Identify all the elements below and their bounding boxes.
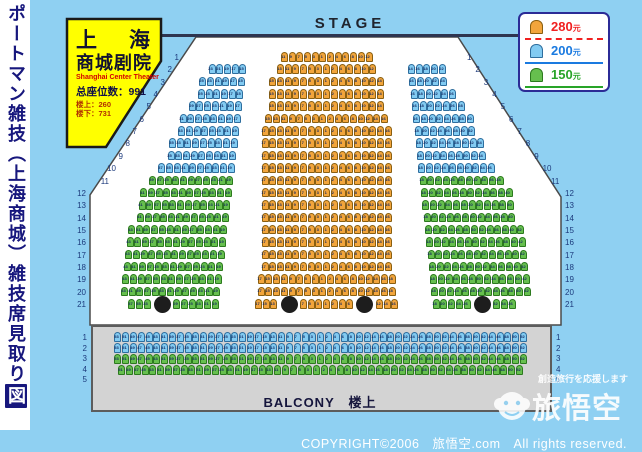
seat: 30	[474, 250, 481, 260]
seat: 16	[385, 262, 392, 272]
seat: 31	[176, 213, 183, 223]
total-seats-text: 总座位数：991	[76, 84, 146, 99]
seat: 10	[358, 114, 365, 124]
seat: 5	[308, 138, 315, 148]
seat: 11	[285, 64, 292, 74]
seat: 12	[369, 101, 376, 111]
seat: 19	[218, 250, 225, 260]
seat: 18	[415, 126, 422, 136]
seat: 15	[269, 188, 276, 198]
seat: 17	[262, 262, 269, 272]
seat: 33	[162, 262, 169, 272]
seat: 5	[308, 200, 315, 210]
seat: 16	[385, 213, 392, 223]
seat: 16	[409, 77, 416, 87]
seat: 35	[166, 163, 173, 173]
seat: 24	[452, 262, 459, 272]
seat: 36	[488, 163, 495, 173]
seat: 6	[341, 354, 348, 364]
seat: 24	[447, 213, 454, 223]
seat: 6	[346, 176, 353, 186]
seat: 1	[323, 151, 330, 161]
seat: 14	[372, 343, 379, 353]
seat: 37	[157, 176, 164, 186]
seat: 19	[247, 332, 254, 342]
seat: 42	[519, 237, 526, 247]
seat: 24	[448, 225, 455, 235]
seat: 9	[292, 262, 299, 272]
seat: 4	[333, 332, 340, 342]
seat: 17	[230, 77, 237, 87]
seat: 6	[346, 151, 353, 161]
seat: 8	[354, 213, 361, 223]
seat: 32	[483, 262, 490, 272]
seat: 39	[136, 287, 143, 297]
seat: 7	[294, 343, 301, 353]
seat: 26	[448, 151, 455, 161]
row-number-label: 15	[565, 226, 574, 235]
seat: 26	[449, 89, 456, 99]
seat: 10	[362, 188, 369, 198]
seat: 4	[333, 343, 340, 353]
seat: 13	[277, 89, 284, 99]
seat: 13	[277, 163, 284, 173]
seat: 38	[502, 225, 509, 235]
seat: 19	[216, 262, 223, 272]
seat: 49	[130, 354, 137, 364]
seat: 22	[436, 188, 443, 198]
seat: 16	[381, 114, 388, 124]
seat: 16	[381, 287, 388, 297]
seat: 35	[165, 176, 172, 186]
seat: 15	[269, 101, 276, 111]
seat: 16	[385, 176, 392, 186]
seat: 12	[369, 250, 376, 260]
seat: 39	[142, 237, 149, 247]
seat: 33	[188, 365, 195, 375]
seat: 38	[465, 343, 472, 353]
seat: 16	[376, 365, 383, 375]
seat: 12	[364, 354, 371, 364]
seat: 4	[339, 163, 346, 173]
seat: 20	[437, 262, 444, 272]
seat: 28	[456, 151, 463, 161]
seat: 2	[331, 225, 338, 235]
seat: 9	[289, 52, 296, 62]
seat: 48	[504, 332, 511, 342]
seat: 40	[510, 225, 517, 235]
seat: 10	[356, 343, 363, 353]
seat: 6	[346, 262, 353, 272]
seat: 50	[512, 354, 519, 364]
seat: 5	[308, 176, 315, 186]
seat: 39	[169, 343, 176, 353]
seat: 3	[315, 163, 322, 173]
seat: 35	[152, 287, 159, 297]
seat: 42	[524, 287, 531, 297]
seat: 7	[300, 176, 307, 186]
seat: 32	[479, 225, 486, 235]
seat: 10	[352, 365, 359, 375]
seat: 21	[220, 163, 227, 173]
seat: 15	[269, 151, 276, 161]
seat: 39	[165, 365, 172, 375]
seat: 36	[493, 213, 500, 223]
seat: 27	[193, 200, 200, 210]
seat: 21	[219, 176, 226, 186]
seat: 27	[195, 176, 202, 186]
seat: 19	[226, 114, 233, 124]
seat: 11	[285, 250, 292, 260]
row-number-label: 21	[72, 300, 86, 309]
seat: 25	[202, 188, 209, 198]
seat: 7	[300, 213, 307, 223]
seat: 16	[385, 151, 392, 161]
seat: 2	[331, 188, 338, 198]
seat: 25	[197, 225, 204, 235]
seat: 26	[457, 237, 464, 247]
seat: 36	[458, 343, 465, 353]
seat: 13	[277, 77, 284, 87]
seat: 25	[190, 287, 197, 297]
seat: 18	[431, 287, 438, 297]
seat: 4	[339, 213, 346, 223]
seat: 25	[205, 163, 212, 173]
seat: 13	[270, 354, 277, 364]
seat: 19	[243, 365, 250, 375]
seat: 11	[285, 126, 292, 136]
seat: 15	[269, 225, 276, 235]
seat: 10	[362, 262, 369, 272]
seat: 15	[269, 237, 276, 247]
legend-row-150: 150元	[525, 65, 603, 89]
watermark-tagline: 創造旅行を応援します	[538, 372, 628, 385]
seat: 28	[422, 365, 429, 375]
seat: 8	[354, 138, 361, 148]
seat: 19	[247, 343, 254, 353]
seat: 4	[339, 89, 346, 99]
seat: 32	[471, 151, 478, 161]
seat: 22	[443, 250, 450, 260]
seat: 3	[315, 64, 322, 74]
seat: 10	[362, 176, 369, 186]
seat: 33	[172, 176, 179, 186]
seat: 23	[217, 126, 224, 136]
seat: 9	[289, 274, 296, 284]
seat: 23	[202, 250, 209, 260]
seat: 9	[292, 163, 299, 173]
seat: 17	[255, 354, 262, 364]
seat: 7	[296, 114, 303, 124]
seat: 36	[494, 225, 501, 235]
seat: 13	[270, 299, 277, 309]
seat: 23	[209, 188, 216, 198]
seat: 35	[169, 138, 176, 148]
seat: 28	[460, 188, 467, 198]
seat: 33	[161, 274, 168, 284]
seat: 29	[208, 332, 215, 342]
seat: 21	[213, 89, 220, 99]
row-number-label: 18	[565, 263, 574, 272]
seat: 25	[199, 213, 206, 223]
seat: 34	[488, 237, 495, 247]
seat: 10	[362, 200, 369, 210]
seat: 33	[174, 163, 181, 173]
seat: 14	[372, 332, 379, 342]
seat: 35	[185, 354, 192, 364]
seat: 40	[508, 213, 515, 223]
seat: 15	[239, 64, 246, 74]
seat: 42	[481, 332, 488, 342]
seat: 13	[277, 151, 284, 161]
seat: 22	[403, 332, 410, 342]
seat: 29	[189, 163, 196, 173]
seat: 51	[118, 365, 125, 375]
seat: 45	[146, 354, 153, 364]
seat: 25	[204, 101, 211, 111]
seat: 44	[485, 365, 492, 375]
seat: 25	[194, 250, 201, 260]
seat: 27	[194, 188, 201, 198]
seat: 4	[339, 126, 346, 136]
seat: 31	[183, 151, 190, 161]
seat: 40	[512, 250, 519, 260]
seat: 3	[312, 114, 319, 124]
seat: 10	[358, 274, 365, 284]
seat: 20	[427, 176, 434, 186]
seat: 9	[289, 287, 296, 297]
seat: 15	[259, 365, 266, 375]
seat: 6	[337, 365, 344, 375]
seat: 21	[239, 354, 246, 364]
seat: 25	[208, 138, 215, 148]
legend-underline	[525, 86, 603, 88]
seat: 22	[446, 274, 453, 284]
seat: 16	[413, 114, 420, 124]
legend-price-150: 150元	[551, 67, 581, 82]
seat: 11	[285, 138, 292, 148]
seat: 19	[222, 77, 229, 87]
seat: 5	[308, 262, 315, 272]
seat: 21	[239, 332, 246, 342]
seat: 15	[236, 89, 243, 99]
seat: 17	[262, 188, 269, 198]
seat: 6	[342, 114, 349, 124]
row-number-label: 1	[556, 333, 560, 342]
seat: 20	[391, 365, 398, 375]
seat: 41	[137, 213, 144, 223]
seat: 37	[153, 213, 160, 223]
seat: 2	[331, 151, 338, 161]
seat: 10	[362, 126, 369, 136]
seat: 21	[218, 114, 225, 124]
seat: 34	[487, 225, 494, 235]
seat: 28	[458, 176, 465, 186]
seat: 37	[177, 354, 184, 364]
seat: 20	[434, 237, 441, 247]
seat: 32	[478, 213, 485, 223]
seat: 6	[341, 332, 348, 342]
seat: 41	[161, 332, 168, 342]
seat: 17	[262, 200, 269, 210]
seat: 24	[439, 138, 446, 148]
seat: 18	[418, 163, 425, 173]
seat: 5	[308, 299, 315, 309]
seat: 23	[198, 287, 205, 297]
seat: 23	[215, 138, 222, 148]
seat: 36	[490, 188, 497, 198]
seat: 37	[148, 250, 155, 260]
seat: 20	[429, 114, 436, 124]
seat: 3	[315, 200, 322, 210]
seat: 35	[153, 274, 160, 284]
seat: 34	[484, 200, 491, 210]
seat: 7	[300, 262, 307, 272]
seat: 13	[270, 343, 277, 353]
seat: 31	[180, 114, 187, 124]
row-number-label: 10	[543, 164, 552, 173]
seat: 3	[315, 237, 322, 247]
seat: 22	[435, 101, 442, 111]
seat: 24	[411, 343, 418, 353]
seat: 33	[169, 200, 176, 210]
seat: 22	[434, 89, 441, 99]
seat: 28	[463, 225, 470, 235]
seat: 41	[133, 250, 140, 260]
row-number-label: 1	[73, 333, 87, 342]
seat: 21	[221, 151, 228, 161]
seat: 20	[431, 213, 438, 223]
seat: 24	[445, 200, 452, 210]
seat: 31	[167, 287, 174, 297]
seat: 28	[466, 250, 473, 260]
seat: 21	[206, 287, 213, 297]
seat: 6	[346, 89, 353, 99]
seat: 16	[385, 163, 392, 173]
seat: 31	[173, 237, 180, 247]
seat: 3	[315, 225, 322, 235]
row-number-label: 3	[73, 354, 87, 363]
seat: 24	[443, 101, 450, 111]
seat: 40	[473, 354, 480, 364]
row-number-label: 17	[565, 251, 574, 260]
seat: 28	[458, 101, 465, 111]
seat: 18	[428, 250, 435, 260]
seat: 19	[232, 126, 239, 136]
seat: 18	[423, 64, 430, 74]
seat: 12	[369, 126, 376, 136]
seat: 22	[439, 64, 446, 74]
seat: 19	[224, 64, 231, 74]
seat: 7	[300, 200, 307, 210]
seat: 7	[300, 89, 307, 99]
seat: 3	[315, 213, 322, 223]
seat: 23	[214, 151, 221, 161]
seat: 23	[208, 200, 215, 210]
seat: 20	[440, 299, 447, 309]
row-number-label: 20	[565, 288, 574, 297]
seat: 11	[285, 225, 292, 235]
row-number-label: 14	[565, 214, 574, 223]
seat: 24	[441, 89, 448, 99]
seat: 24	[451, 250, 458, 260]
seat: 30	[467, 188, 474, 198]
seat: 20	[425, 151, 432, 161]
seat: 13	[277, 64, 284, 74]
seat: 28	[470, 287, 477, 297]
seat: 9	[292, 237, 299, 247]
seat: 12	[369, 213, 376, 223]
seat: 8	[354, 77, 361, 87]
seat: 36	[497, 250, 504, 260]
seat: 23	[212, 163, 219, 173]
seat: 17	[262, 237, 269, 247]
seat-icon	[530, 44, 543, 58]
seat: 1	[323, 89, 330, 99]
seat: 18	[420, 176, 427, 186]
seat: 45	[142, 365, 149, 375]
seat: 15	[263, 343, 270, 353]
seat: 26	[456, 225, 463, 235]
seat: 7	[300, 237, 307, 247]
seat: 23	[206, 89, 213, 99]
seat: 7	[300, 77, 307, 87]
seat: 24	[440, 77, 447, 87]
seat: 42	[521, 262, 528, 272]
seat: 6	[346, 188, 353, 198]
seat: 33	[177, 138, 184, 148]
seat: 5	[304, 114, 311, 124]
seat: 21	[211, 237, 218, 247]
seat: 35	[160, 213, 167, 223]
seat: 51	[122, 332, 129, 342]
seat: 22	[435, 176, 442, 186]
seat: 24	[407, 365, 414, 375]
seat: 4	[339, 225, 346, 235]
seat: 10	[362, 89, 369, 99]
seat: 7	[300, 138, 307, 148]
seat: 20	[425, 77, 432, 87]
seat: 41	[131, 262, 138, 272]
seat: 11	[285, 163, 292, 173]
seat: 8	[350, 274, 357, 284]
seat: 23	[210, 114, 217, 124]
seat: 25	[224, 332, 231, 342]
seat: 25	[209, 126, 216, 136]
seat: 12	[369, 176, 376, 186]
seat: 6	[342, 287, 349, 297]
seat: 8	[354, 188, 361, 198]
seat: 13	[277, 176, 284, 186]
seat: 2	[331, 200, 338, 210]
row-number-label: 21	[565, 300, 574, 309]
seat: 21	[207, 274, 214, 284]
seat: 25	[196, 237, 203, 247]
seat: 40	[473, 332, 480, 342]
seat: 3	[315, 176, 322, 186]
seat: 25	[193, 262, 200, 272]
seat: 51	[122, 354, 129, 364]
seat: 18	[433, 299, 440, 309]
seat: 24	[440, 151, 447, 161]
seat: 35	[168, 151, 175, 161]
seat: 11	[281, 114, 288, 124]
seat: 19	[213, 287, 220, 297]
seat: 43	[153, 343, 160, 353]
seat: 5	[308, 163, 315, 173]
seat: 5	[308, 151, 315, 161]
seat: 4	[339, 77, 346, 87]
